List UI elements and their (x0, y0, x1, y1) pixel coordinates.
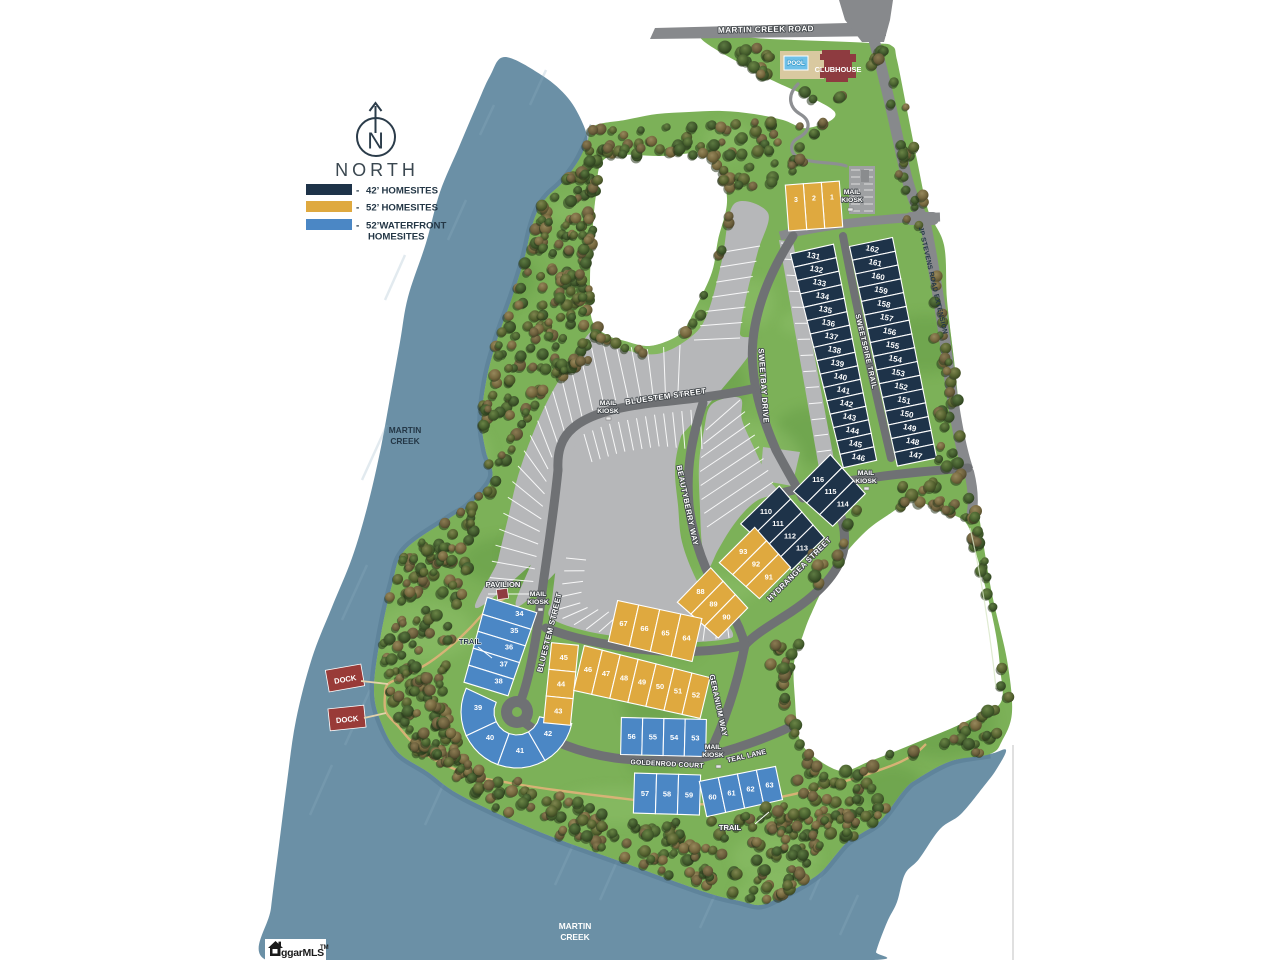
svg-text:MARTIN: MARTIN (389, 425, 422, 435)
svg-text:113: 113 (796, 544, 808, 553)
svg-text:TM: TM (320, 945, 329, 951)
svg-text:-: - (356, 203, 359, 214)
svg-text:58: 58 (663, 790, 671, 799)
svg-text:35: 35 (510, 626, 518, 635)
svg-text:34: 34 (515, 609, 524, 618)
svg-text:66: 66 (640, 624, 648, 633)
svg-text:64: 64 (682, 633, 691, 642)
svg-text:NORTH: NORTH (335, 160, 419, 180)
svg-text:41: 41 (516, 746, 524, 755)
svg-text:37: 37 (500, 660, 508, 669)
svg-text:67: 67 (619, 619, 627, 628)
svg-text:52’ HOMESITES: 52’ HOMESITES (366, 203, 439, 214)
svg-text:MAIL: MAIL (844, 189, 861, 196)
svg-text:KIOSK: KIOSK (597, 408, 619, 415)
svg-text:110: 110 (760, 507, 772, 516)
svg-text:89: 89 (709, 600, 717, 609)
svg-text:53: 53 (691, 734, 699, 743)
svg-text:39: 39 (474, 703, 482, 712)
svg-text:56: 56 (627, 732, 635, 741)
svg-text:KIOSK: KIOSK (841, 197, 863, 204)
svg-text:90: 90 (722, 612, 730, 621)
svg-text:43: 43 (554, 706, 562, 715)
svg-text:62: 62 (746, 785, 754, 794)
svg-text:63: 63 (765, 781, 773, 790)
svg-text:KIOSK: KIOSK (855, 478, 877, 485)
svg-text:61: 61 (727, 789, 735, 798)
svg-text:52: 52 (692, 691, 700, 700)
svg-text:38: 38 (494, 676, 502, 685)
svg-text:-: - (356, 221, 359, 232)
svg-text:MARTIN CREEK ROAD: MARTIN CREEK ROAD (718, 24, 814, 35)
svg-text:36: 36 (505, 643, 513, 652)
svg-text:MARTIN: MARTIN (559, 921, 592, 931)
svg-text:112: 112 (784, 531, 796, 540)
svg-text:49: 49 (638, 678, 646, 687)
svg-text:KIOSK: KIOSK (702, 752, 724, 759)
svg-text:116: 116 (812, 475, 824, 484)
svg-text:1: 1 (830, 194, 834, 201)
svg-text:MAIL: MAIL (530, 591, 547, 598)
svg-text:91: 91 (765, 572, 773, 581)
svg-text:CREEK: CREEK (390, 436, 419, 446)
svg-text:KIOSK: KIOSK (527, 599, 549, 606)
svg-text:MAIL: MAIL (705, 744, 722, 751)
svg-text:48: 48 (620, 673, 628, 682)
svg-text:42’ HOMESITES: 42’ HOMESITES (366, 186, 439, 197)
svg-text:65: 65 (661, 629, 669, 638)
svg-text:N: N (367, 128, 384, 154)
svg-text:93: 93 (739, 547, 747, 556)
svg-text:55: 55 (649, 733, 657, 742)
svg-text:45: 45 (560, 653, 568, 662)
svg-text:TRAIL: TRAIL (719, 823, 742, 832)
svg-text:88: 88 (696, 587, 704, 596)
svg-text:114: 114 (837, 500, 850, 509)
svg-text:115: 115 (825, 487, 837, 496)
svg-text:46: 46 (584, 665, 592, 674)
svg-text:POOL: POOL (787, 60, 805, 67)
svg-text:51: 51 (674, 686, 682, 695)
svg-text:3: 3 (794, 197, 798, 204)
svg-text:111: 111 (772, 519, 784, 528)
svg-text:PAVILION: PAVILION (486, 580, 521, 589)
svg-text:ggarMLS: ggarMLS (281, 947, 324, 959)
svg-text:TRAIL: TRAIL (459, 637, 482, 646)
svg-text:47: 47 (602, 669, 610, 678)
svg-text:44: 44 (557, 680, 566, 689)
svg-text:59: 59 (685, 790, 693, 799)
svg-text:HOMESITES: HOMESITES (368, 232, 425, 243)
svg-text:42: 42 (544, 729, 552, 738)
svg-text:52’WATERFRONT: 52’WATERFRONT (366, 221, 446, 232)
svg-text:CREEK: CREEK (560, 932, 589, 942)
svg-text:2: 2 (812, 196, 816, 203)
svg-text:MAIL: MAIL (858, 470, 875, 477)
svg-text:54: 54 (670, 733, 679, 742)
svg-text:60: 60 (708, 793, 716, 802)
svg-text:50: 50 (656, 682, 664, 691)
svg-text:40: 40 (486, 733, 494, 742)
svg-text:57: 57 (641, 789, 649, 798)
svg-text:CLUBHOUSE: CLUBHOUSE (815, 65, 862, 74)
svg-text:92: 92 (752, 560, 760, 569)
svg-text:MAIL: MAIL (600, 400, 617, 407)
svg-text:-: - (356, 186, 359, 197)
